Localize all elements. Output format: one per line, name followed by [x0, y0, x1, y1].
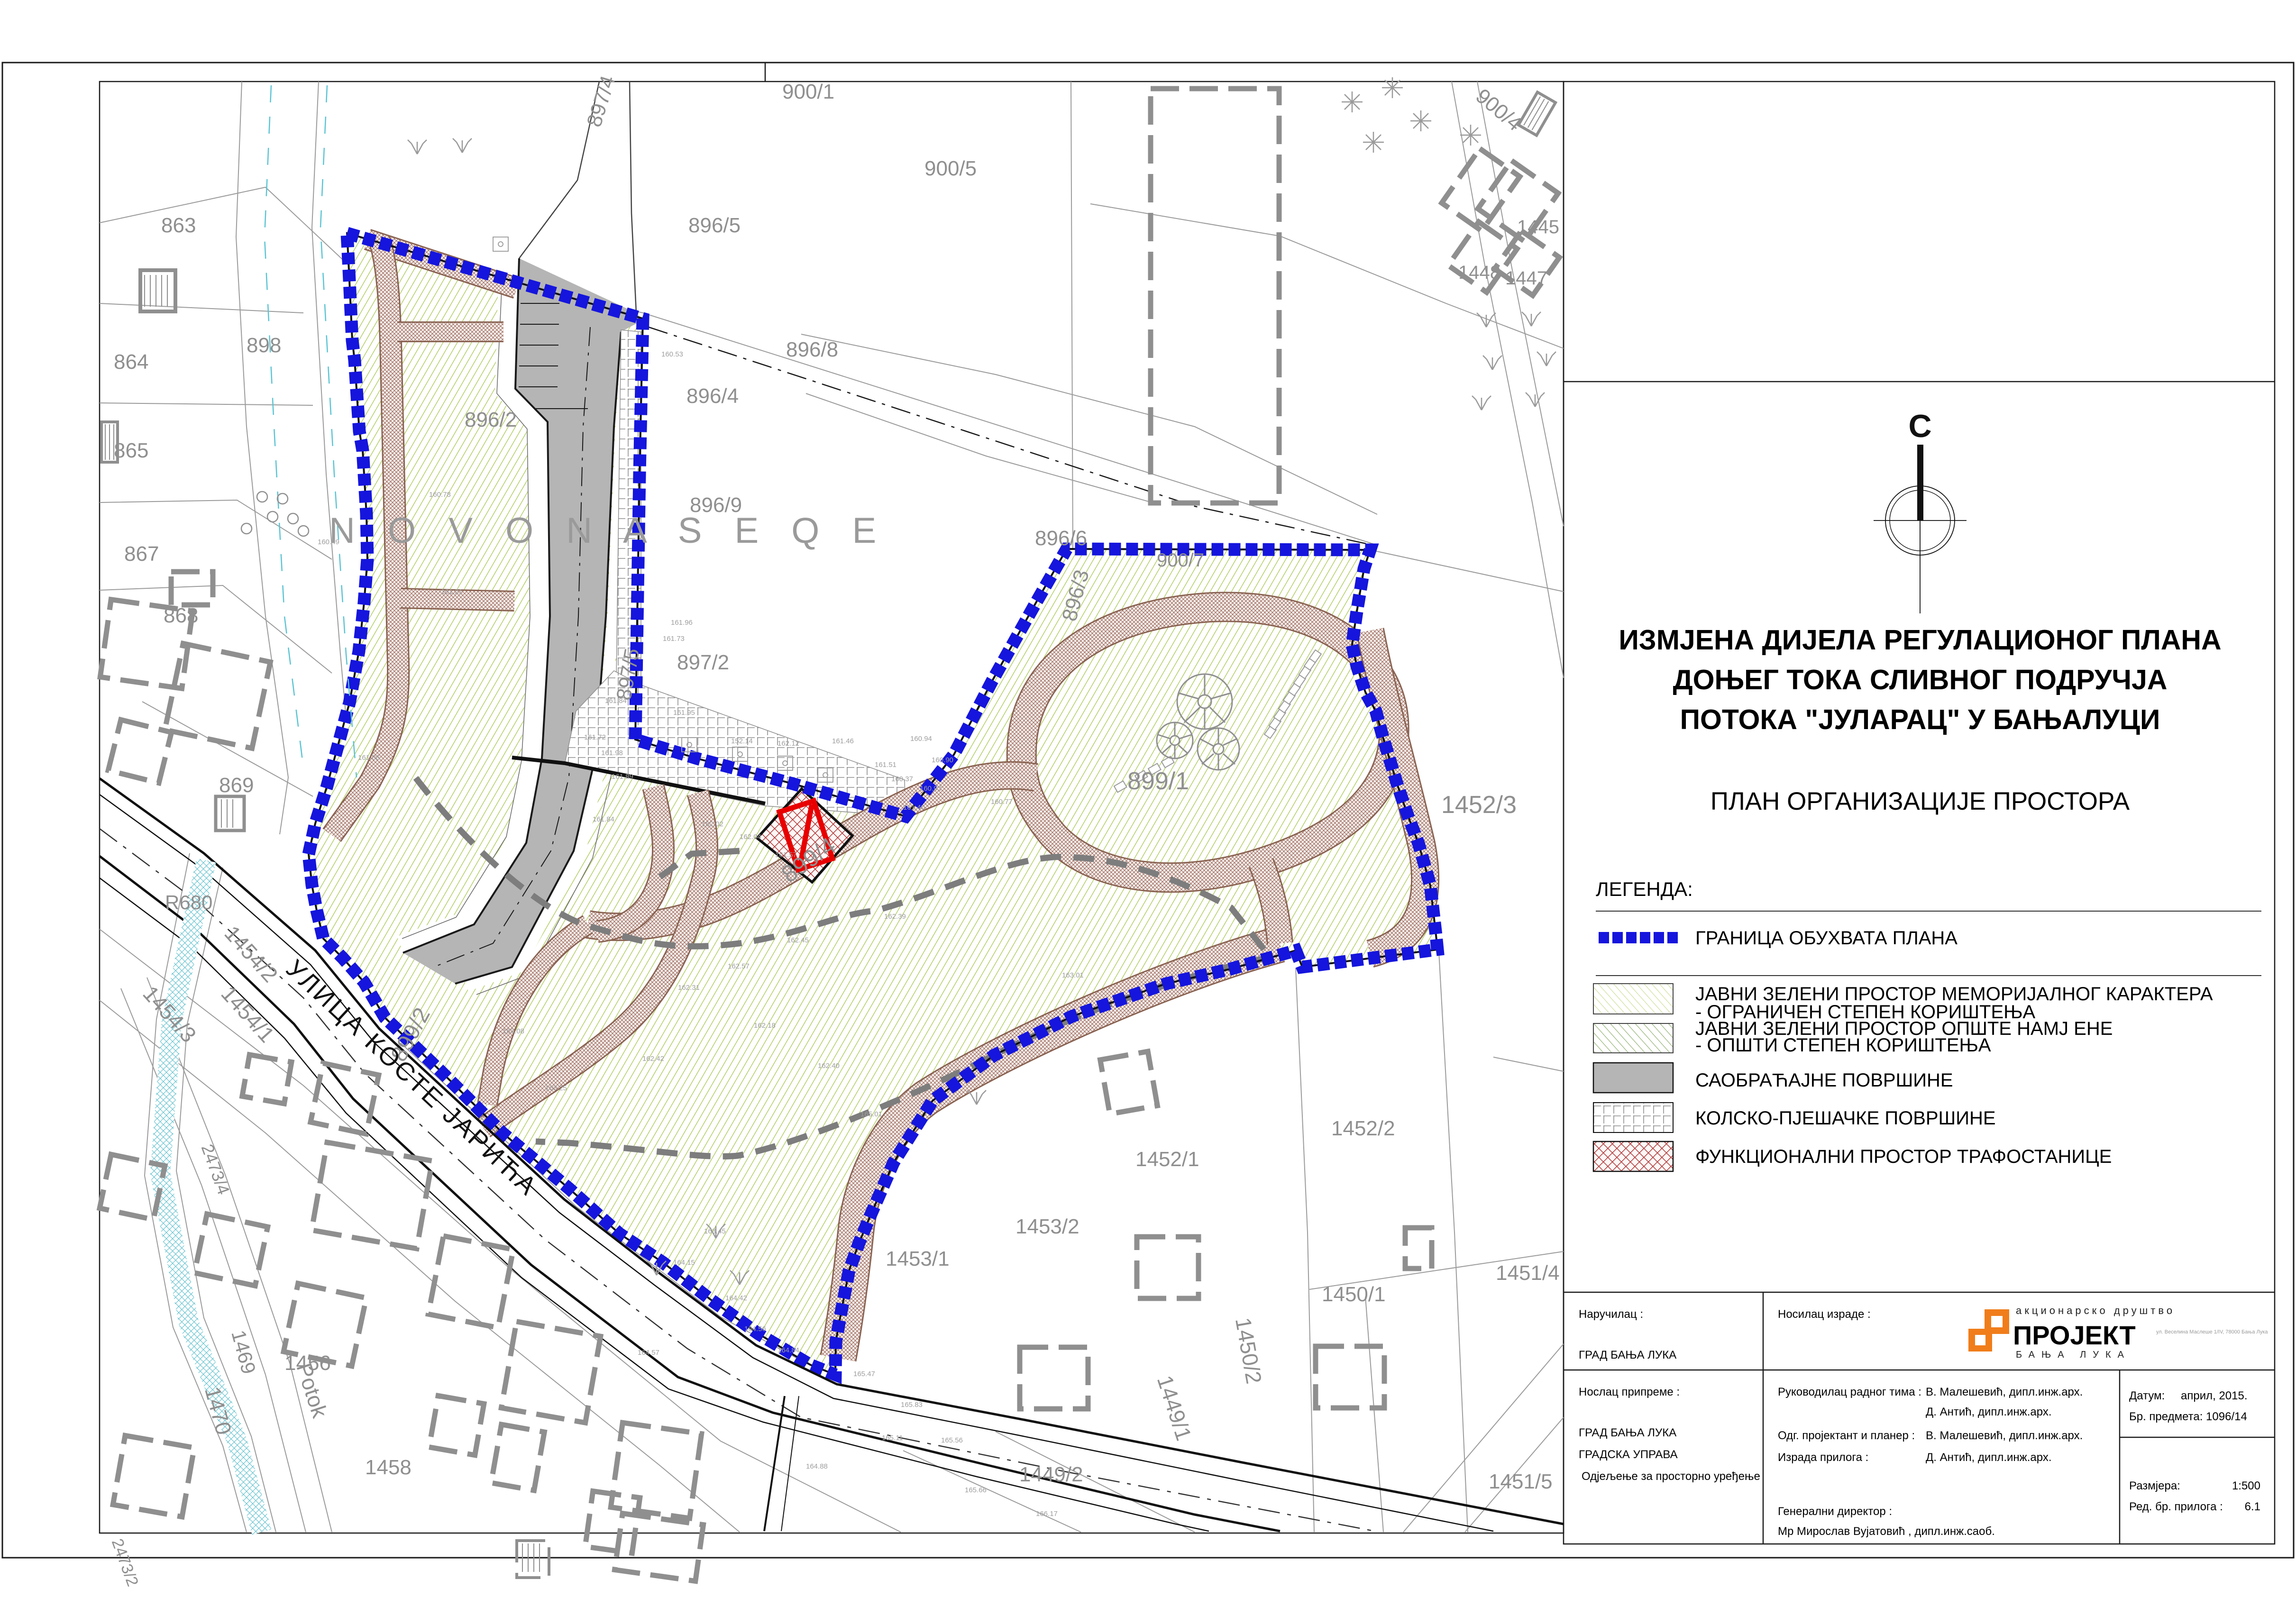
svg-text:161.84: 161.84: [593, 815, 614, 823]
svg-text:1453/2: 1453/2: [1015, 1215, 1079, 1238]
svg-text:ЛЕГЕНДА:: ЛЕГЕНДА:: [1596, 878, 1693, 900]
svg-text:165.66: 165.66: [965, 1486, 987, 1494]
svg-text:897/2: 897/2: [677, 651, 729, 674]
svg-text:161.72: 161.72: [584, 733, 606, 741]
svg-text:1:500: 1:500: [2232, 1479, 2260, 1492]
svg-text:162.31: 162.31: [678, 984, 700, 992]
svg-text:ул. Веселина Маслеше 1/IV, 780: ул. Веселина Маслеше 1/IV, 78000 Бања Лу…: [2156, 1329, 2268, 1335]
svg-text:163.01: 163.01: [1062, 971, 1084, 979]
svg-text:164.88: 164.88: [806, 1462, 828, 1470]
svg-text:865: 865: [114, 439, 148, 462]
svg-text:161.06: 161.06: [358, 754, 380, 762]
svg-text:1445: 1445: [1517, 217, 1559, 237]
svg-text:КОЛСКО-ПЈЕШАЧКЕ ПОВРШИНЕ: КОЛСКО-ПЈЕШАЧКЕ ПОВРШИНЕ: [1695, 1108, 1996, 1129]
svg-text:Размјера:: Размјера:: [2129, 1479, 2180, 1492]
svg-text:896/2: 896/2: [465, 408, 517, 431]
svg-text:896/4: 896/4: [686, 384, 739, 408]
svg-text:160.53: 160.53: [661, 350, 683, 358]
svg-text:ФУНКЦИОНАЛНИ ПРОСТОР ТРАФОСТАН: ФУНКЦИОНАЛНИ ПРОСТОР ТРАФОСТАНИЦЕ: [1695, 1146, 2112, 1167]
svg-text:ИЗМЈЕНА ДИЈЕЛА РЕГУЛАЦИОНОГ ПЛ: ИЗМЈЕНА ДИЈЕЛА РЕГУЛАЦИОНОГ ПЛАНА: [1619, 624, 2221, 656]
svg-text:Носилац израде :: Носилац израде :: [1778, 1308, 1871, 1321]
svg-text:ПОТОКА "ЈУЛАРАЦ" У БАЊАЛУЦИ: ПОТОКА "ЈУЛАРАЦ" У БАЊАЛУЦИ: [1680, 704, 2160, 735]
svg-text:Мр Мирослав Вујатовић , дипл.и: Мр Мирослав Вујатовић , дипл.инж.саоб.: [1778, 1525, 1995, 1538]
svg-text:ПЛАН ОРГАНИЗАЦИЈЕ ПРОСТОРА: ПЛАН ОРГАНИЗАЦИЈЕ ПРОСТОРА: [1711, 787, 2130, 815]
svg-text:Руководилац радног тима :: Руководилац радног тима :: [1778, 1386, 1921, 1398]
svg-text:863: 863: [161, 214, 196, 237]
svg-text:1458: 1458: [365, 1456, 412, 1479]
svg-text:Одг. пројектант и планер :: Одг. пројектант и планер :: [1778, 1429, 1915, 1442]
svg-text:В. Малешевић, дипл.инж.арх.: В. Малешевић, дипл.инж.арх.: [1926, 1386, 2083, 1398]
svg-text:864: 864: [114, 350, 148, 374]
svg-text:В. Малешевић, дипл.инж.арх.: В. Малешевић, дипл.инж.арх.: [1926, 1429, 2083, 1442]
svg-text:1452/2: 1452/2: [1331, 1117, 1395, 1140]
svg-text:С: С: [1908, 408, 1931, 444]
svg-text:900/1: 900/1: [782, 80, 834, 103]
svg-text:6.1: 6.1: [2245, 1500, 2260, 1513]
svg-text:900/7: 900/7: [1157, 550, 1204, 571]
svg-text:162.04: 162.04: [740, 833, 761, 841]
svg-text:1452/3: 1452/3: [1441, 791, 1517, 819]
svg-text:Д. Антић, дипл.инж.арх.: Д. Антић, дипл.инж.арх.: [1926, 1451, 2052, 1464]
svg-text:165.11: 165.11: [882, 1434, 903, 1442]
svg-text:160.94: 160.94: [910, 735, 932, 743]
svg-text:898: 898: [247, 334, 281, 357]
svg-text:Датум:: Датум:: [2129, 1389, 2165, 1402]
svg-text:САОБРАЋАЈНЕ ПОВРШИНЕ: САОБРАЋАЈНЕ ПОВРШИНЕ: [1695, 1070, 1953, 1091]
svg-text:900/5: 900/5: [924, 157, 977, 180]
svg-text:162.40: 162.40: [818, 1062, 840, 1070]
svg-text:161.57: 161.57: [775, 851, 797, 859]
svg-text:161.96: 161.96: [671, 619, 693, 627]
svg-text:Одјељење за просторно уређење: Одјељење за просторно уређење: [1582, 1470, 1760, 1483]
svg-text:162.02: 162.02: [702, 820, 723, 828]
svg-text:април, 2015.: април, 2015.: [2181, 1389, 2248, 1402]
svg-text:163.08: 163.08: [503, 1027, 524, 1035]
svg-text:Ред. бр. прилога :: Ред. бр. прилога :: [2129, 1500, 2223, 1513]
svg-text:896/5: 896/5: [688, 214, 741, 237]
svg-text:- ОПШТИ СТЕПЕН КОРИШТЕЊА: - ОПШТИ СТЕПЕН КОРИШТЕЊА: [1695, 1035, 1991, 1056]
svg-text:165.56: 165.56: [941, 1436, 963, 1444]
svg-text:161.46: 161.46: [832, 737, 854, 745]
svg-text:акционарско друштво: акционарско друштво: [2016, 1305, 2175, 1316]
svg-text:162.18: 162.18: [754, 1022, 776, 1030]
svg-text:1450/1: 1450/1: [1322, 1283, 1386, 1306]
svg-text:162.42: 162.42: [642, 1055, 664, 1063]
svg-text:ГРАДСКА УПРАВА: ГРАДСКА УПРАВА: [1579, 1448, 1678, 1461]
svg-text:160.78: 160.78: [429, 491, 451, 499]
svg-text:R680: R680: [165, 891, 212, 913]
svg-text:165.01: 165.01: [860, 1110, 882, 1118]
svg-text:160.93: 160.93: [920, 785, 942, 793]
svg-text:ГРАД БАЊА ЛУКА: ГРАД БАЊА ЛУКА: [1579, 1349, 1676, 1361]
svg-text:869: 869: [219, 774, 254, 797]
svg-text:867: 867: [124, 542, 159, 566]
svg-text:163.25: 163.25: [545, 1084, 567, 1092]
svg-text:Нослац припреме :: Нослац припреме :: [1579, 1386, 1680, 1398]
svg-text:162.45: 162.45: [787, 936, 809, 944]
svg-text:1447: 1447: [1505, 268, 1547, 289]
svg-text:160.37: 160.37: [891, 775, 913, 783]
svg-text:152.14: 152.14: [731, 737, 753, 745]
svg-text:161.21: 161.21: [441, 588, 463, 596]
svg-text:163.45: 163.45: [704, 1227, 726, 1235]
svg-text:ГРАНИЦА ОБУХВАТА ПЛАНА: ГРАНИЦА ОБУХВАТА ПЛАНА: [1695, 928, 1958, 949]
svg-text:164.84: 164.84: [778, 1346, 799, 1354]
svg-text:Д. Антић, дипл.инж.арх.: Д. Антић, дипл.инж.арх.: [1926, 1406, 2052, 1418]
svg-text:160.77: 160.77: [991, 798, 1013, 806]
svg-text:899/1: 899/1: [1127, 767, 1189, 795]
svg-text:1449/2: 1449/2: [1019, 1463, 1083, 1486]
svg-text:161.98: 161.98: [601, 749, 623, 757]
svg-text:1452/1: 1452/1: [1135, 1148, 1199, 1171]
svg-text:Израда прилога :: Израда прилога :: [1778, 1451, 1868, 1464]
svg-text:160.49: 160.49: [318, 538, 339, 546]
svg-text:161.84: 161.84: [605, 697, 627, 705]
svg-text:Бр. предмета: 1096/14: Бр. предмета: 1096/14: [2129, 1410, 2247, 1423]
svg-text:160.90: 160.90: [932, 756, 953, 764]
svg-text:896/8: 896/8: [786, 338, 838, 361]
svg-text:1451/5: 1451/5: [1489, 1470, 1553, 1493]
svg-text:166.17: 166.17: [1036, 1510, 1058, 1518]
svg-text:1453/1: 1453/1: [886, 1247, 950, 1270]
svg-text:164.15: 164.15: [673, 1259, 695, 1267]
svg-text:161.89: 161.89: [612, 773, 633, 781]
svg-text:ГРАД БАЊА ЛУКА: ГРАД БАЊА ЛУКА: [1579, 1426, 1676, 1439]
svg-text:896/6: 896/6: [1035, 527, 1087, 550]
svg-text:162.57: 162.57: [728, 962, 750, 970]
svg-text:161.40: 161.40: [903, 803, 925, 812]
svg-text:164.56: 164.56: [744, 1325, 766, 1333]
svg-text:161.95: 161.95: [673, 709, 695, 717]
svg-text:1448: 1448: [1458, 262, 1500, 283]
svg-text:868: 868: [164, 604, 198, 627]
svg-text:ДОЊЕГ ТОКА СЛИВНОГ ПОДРУЧЈА: ДОЊЕГ ТОКА СЛИВНОГ ПОДРУЧЈА: [1673, 664, 2168, 695]
svg-text:1451/4: 1451/4: [1496, 1261, 1560, 1285]
svg-text:164.57: 164.57: [638, 1349, 659, 1357]
svg-text:БАЊА ЛУКА: БАЊА ЛУКА: [2016, 1350, 2131, 1360]
svg-text:N O V O N A S E Q E: N O V O N A S E Q E: [329, 511, 887, 551]
svg-text:165.47: 165.47: [853, 1370, 875, 1378]
svg-text:165.83: 165.83: [901, 1401, 923, 1409]
svg-text:162.12: 162.12: [778, 740, 799, 748]
svg-text:Наручилац :: Наручилац :: [1579, 1308, 1643, 1321]
svg-text:162.39: 162.39: [884, 913, 906, 921]
svg-text:161.73: 161.73: [663, 635, 685, 643]
svg-text:ПРОЈЕКТ: ПРОЈЕКТ: [2013, 1320, 2136, 1350]
svg-text:161.51: 161.51: [875, 761, 896, 769]
svg-text:Генерални директор :: Генерални директор :: [1778, 1505, 1892, 1518]
svg-text:164.42: 164.42: [725, 1294, 747, 1302]
